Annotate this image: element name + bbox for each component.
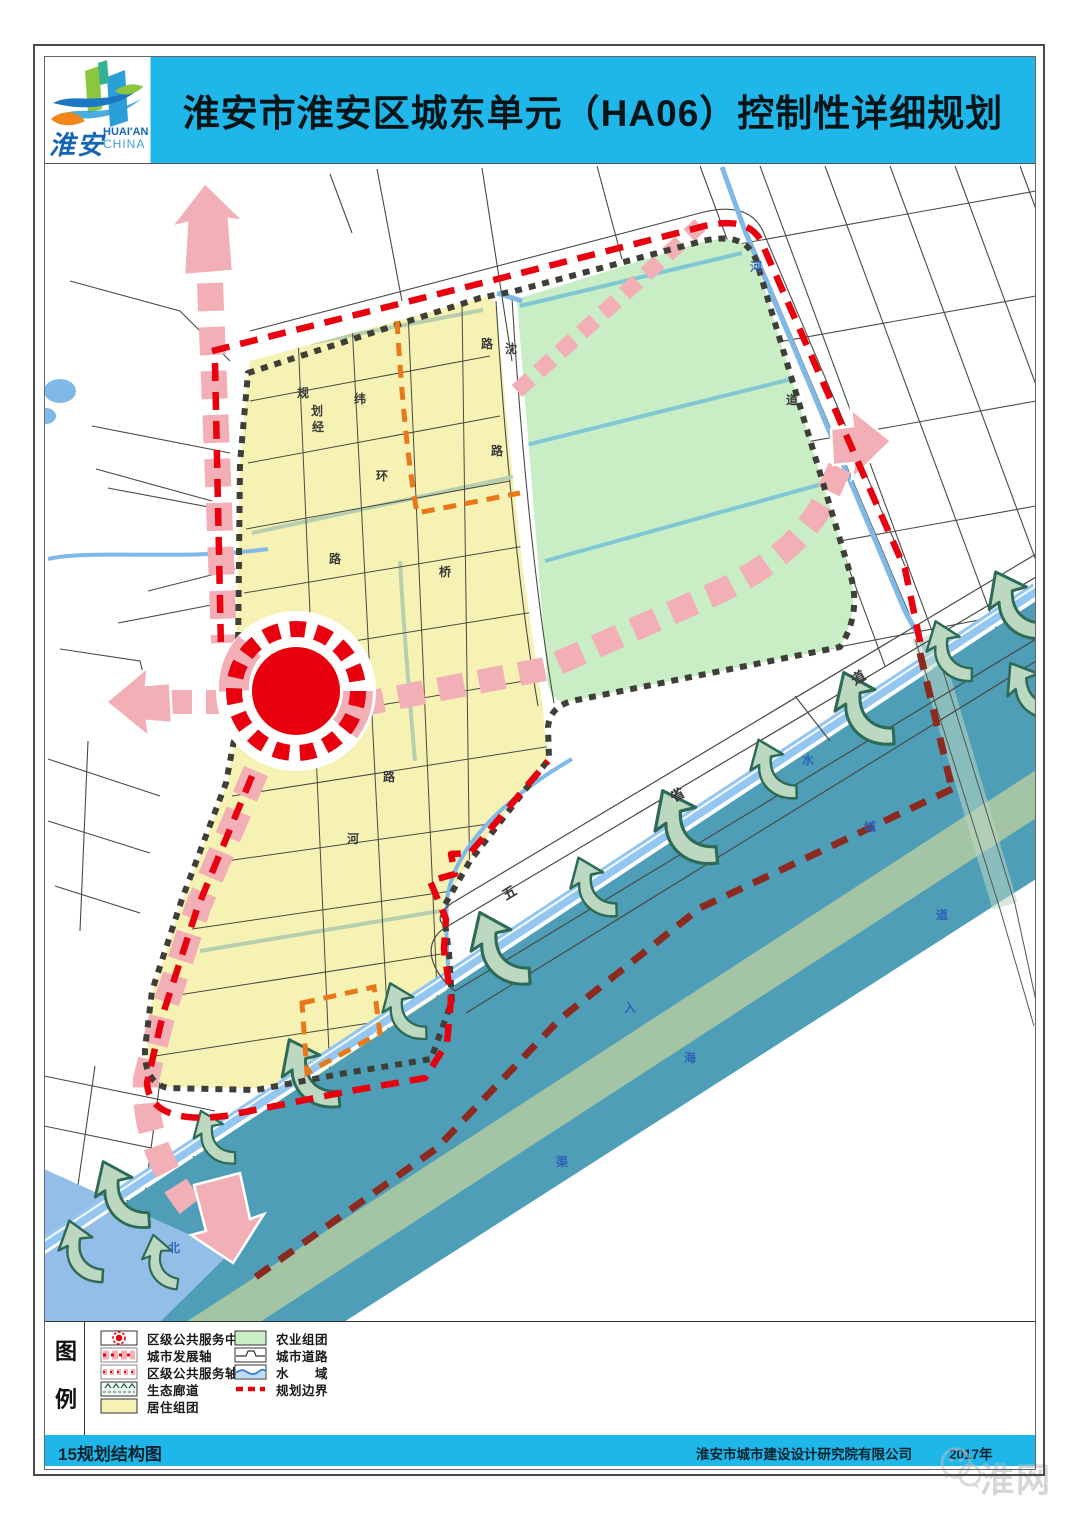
- plan-poster-page: 淮安 HUAI'AN CHINA 淮安市淮安区城东单元（HA06）控制性详细规划: [0, 0, 1080, 1526]
- page-inner-frame: [44, 56, 1036, 1470]
